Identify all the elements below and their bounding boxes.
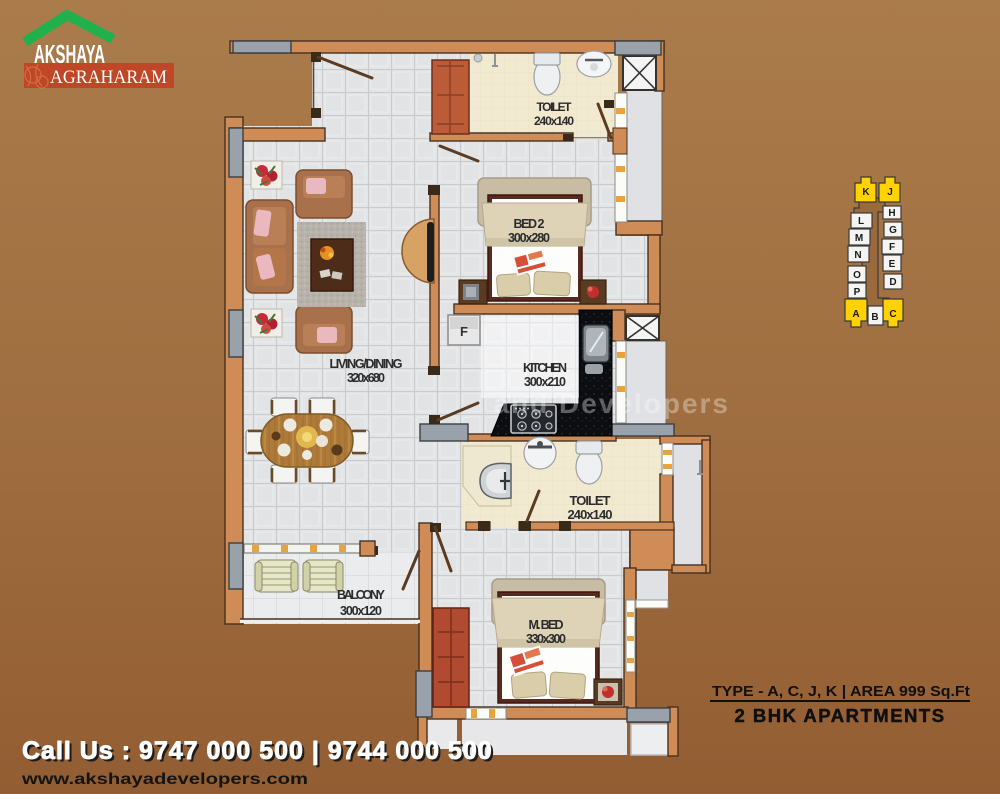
svg-text:2 BHK APARTMENTS: 2 BHK APARTMENTS — [734, 705, 945, 726]
svg-text:Call Us : 9747 000 500 | 9744: Call Us : 9747 000 500 | 9744 000 500 — [22, 737, 493, 765]
svg-text:and Developers: and Developers — [493, 388, 730, 419]
svg-text:TYPE - A, C, J, K | AREA 999 S: TYPE - A, C, J, K | AREA 999 Sq.Ft — [712, 684, 970, 700]
svg-text:330x300: 330x300 — [526, 632, 566, 646]
svg-text:L: L — [858, 216, 864, 227]
svg-text:AGRAHARAM: AGRAHARAM — [50, 67, 167, 88]
svg-text:C: C — [889, 309, 896, 320]
svg-text:F: F — [460, 324, 468, 339]
svg-text:O: O — [853, 270, 861, 281]
svg-text:300x210: 300x210 — [524, 375, 566, 389]
svg-text:BALCONY: BALCONY — [337, 588, 386, 602]
svg-text:N: N — [854, 250, 861, 261]
svg-text:240x140: 240x140 — [534, 114, 574, 128]
svg-text:300x280: 300x280 — [508, 231, 550, 245]
svg-text:P: P — [854, 287, 861, 298]
svg-text:LIVING/DINING: LIVING/DINING — [330, 357, 403, 371]
svg-text:J: J — [887, 187, 893, 198]
svg-text:G: G — [889, 225, 897, 236]
svg-text:BED 2: BED 2 — [514, 217, 545, 231]
svg-text:F: F — [889, 242, 895, 253]
svg-text:A: A — [852, 309, 859, 320]
svg-text:H: H — [888, 208, 895, 219]
svg-text:M. BED: M. BED — [529, 618, 564, 632]
svg-text:KITCHEN: KITCHEN — [523, 361, 567, 375]
svg-text:TOILET: TOILET — [537, 100, 573, 114]
svg-text:E: E — [889, 259, 896, 270]
svg-text:www.akshayadevelopers.com: www.akshayadevelopers.com — [21, 771, 308, 788]
svg-text:320x680: 320x680 — [347, 371, 385, 385]
svg-text:D: D — [889, 277, 896, 288]
svg-text:TOILET: TOILET — [570, 493, 611, 508]
svg-text:240x140: 240x140 — [568, 507, 613, 522]
svg-text:300x120: 300x120 — [340, 604, 382, 618]
svg-text:M: M — [855, 233, 863, 244]
svg-text:B: B — [871, 312, 878, 323]
svg-text:K: K — [862, 187, 870, 198]
